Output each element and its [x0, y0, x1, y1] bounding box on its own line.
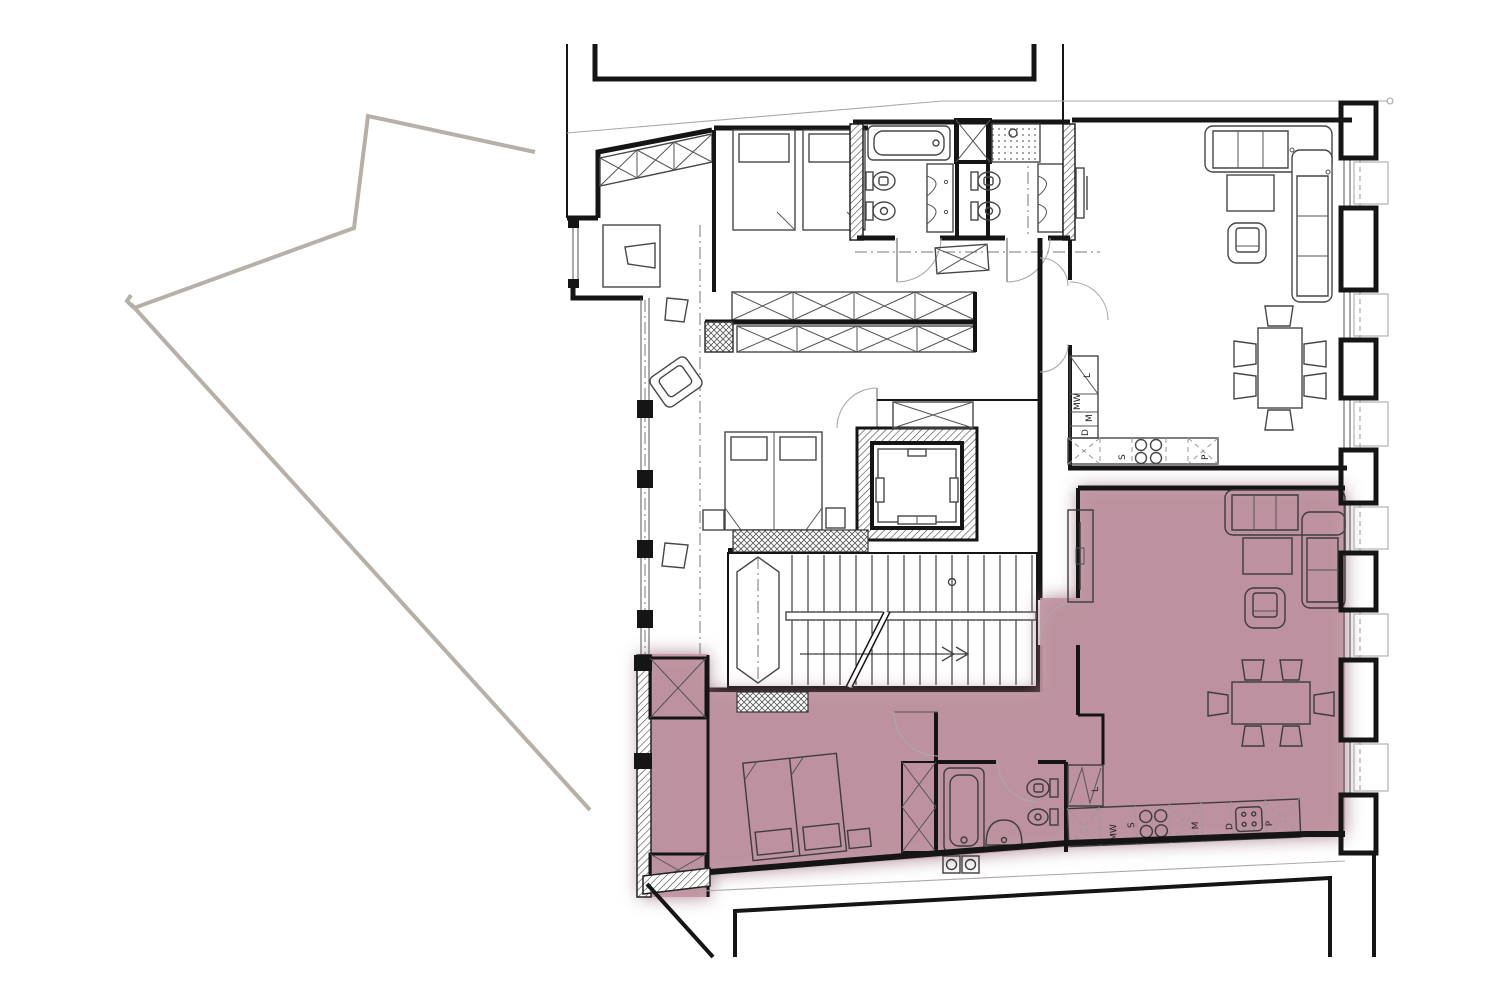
corridor-wardrobe — [705, 292, 975, 352]
washer-icon — [943, 856, 979, 873]
nightstand-icon — [826, 508, 845, 528]
toilet-icon — [971, 172, 1000, 190]
window-icon — [1344, 740, 1388, 795]
nightstand-icon — [703, 510, 724, 530]
coffee-table-icon — [1227, 175, 1274, 211]
right-facade — [1341, 103, 1388, 853]
toilet-icon — [866, 172, 895, 190]
floor-plan-page: L MW M D S P — [0, 0, 1500, 1000]
living-room-upper — [1068, 120, 1352, 468]
floor-plan-canvas: L MW M D S P — [0, 0, 1500, 1000]
desk-chair-icon — [625, 243, 655, 268]
bedroom-twin — [714, 128, 868, 292]
label-sink: S — [1127, 822, 1137, 828]
window-icon — [1344, 290, 1388, 340]
elevator — [857, 400, 1040, 540]
window-icon — [1344, 610, 1388, 660]
dining-set-icon — [1234, 306, 1326, 430]
armchair-icon — [648, 355, 705, 410]
bathtub-icon — [868, 126, 950, 160]
label-oven: M — [1085, 414, 1095, 422]
label-sink: S — [1118, 454, 1128, 460]
vanity-double-sink-icon — [1038, 164, 1063, 232]
tv-unit-icon — [1076, 168, 1087, 218]
label-dishwasher: D — [1081, 429, 1091, 436]
label-pantry: P — [1265, 820, 1275, 826]
vanity-double-sink-icon — [927, 164, 953, 232]
stool-icon — [662, 543, 688, 568]
label-dishwasher: D — [1225, 823, 1235, 830]
site-boundary-line — [127, 116, 590, 810]
label-tall-unit: L — [1091, 787, 1101, 792]
single-bed-icon — [733, 130, 795, 230]
window-icon — [1344, 158, 1388, 208]
shower-icon — [992, 124, 1040, 162]
window-icon — [1344, 398, 1388, 450]
facade-pier — [1341, 103, 1376, 853]
stove-icon — [1136, 440, 1162, 464]
label-tall-unit: L — [1083, 373, 1093, 378]
double-bed-icon — [703, 432, 845, 530]
kitchen-upper: L MW M D S P — [1068, 356, 1218, 464]
bidet-icon — [971, 202, 1000, 220]
desk-icon — [603, 225, 660, 287]
armchair-icon — [1228, 223, 1266, 263]
label-pantry: P — [1201, 454, 1211, 460]
label-microwave: MW — [1073, 393, 1083, 410]
duct-shaft — [956, 120, 990, 162]
stool-icon — [665, 298, 688, 322]
window-icon — [1344, 503, 1388, 553]
label-oven: M — [1191, 821, 1201, 829]
bidet-icon — [866, 202, 895, 220]
corner-sofa-icon — [1205, 126, 1332, 302]
closet-room — [567, 130, 712, 322]
